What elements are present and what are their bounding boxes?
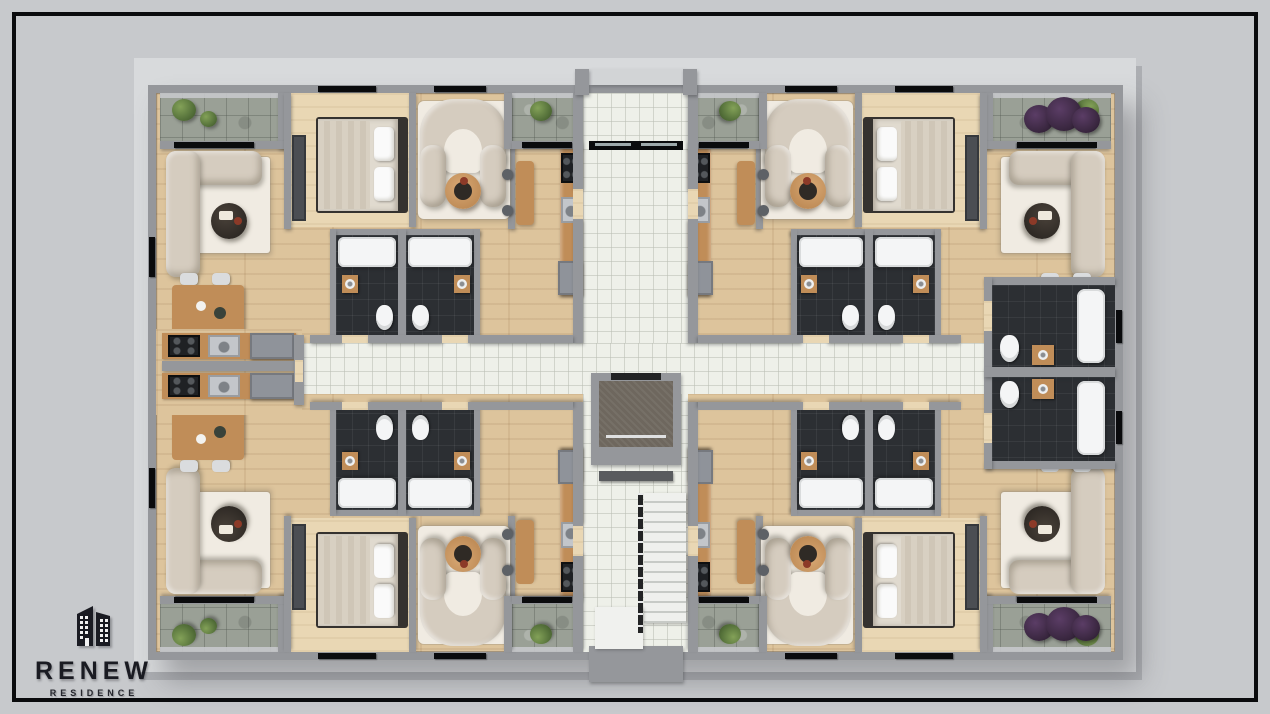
logo-title: RENEW (30, 657, 158, 686)
curved-sofa-inner (444, 572, 482, 616)
balcony-rail (689, 647, 759, 652)
purple-plant (1024, 605, 1102, 649)
wall (688, 556, 698, 652)
bathtub (1077, 289, 1105, 363)
toilet (1000, 335, 1019, 362)
bar-stool (502, 205, 513, 216)
balcony-plant (200, 111, 217, 127)
bar-stool (502, 169, 513, 180)
bathtub (408, 478, 472, 508)
bathtub (1077, 381, 1105, 455)
dining-chair (180, 460, 198, 472)
wall (759, 596, 767, 652)
twin-buildings-icon (69, 600, 119, 648)
window (1116, 411, 1122, 444)
wall (688, 93, 698, 189)
wall (504, 596, 512, 652)
wall (310, 335, 342, 343)
flower-decor (803, 560, 811, 568)
wall (984, 277, 1115, 285)
wall (688, 219, 698, 343)
curved-sofa-inner (789, 572, 827, 616)
balcony-plant (172, 99, 196, 121)
wash-basin (454, 452, 470, 470)
wall (984, 367, 1115, 377)
duvet (318, 536, 370, 624)
curved-sofa-inner (444, 129, 482, 173)
wash-basin (801, 452, 817, 470)
stair-landing (595, 607, 643, 649)
coffee-table-tray (1038, 211, 1052, 220)
door-gap (903, 402, 929, 410)
balcony-plant (200, 618, 217, 634)
wall (409, 93, 416, 227)
logo-subtitle: RESIDENCE (30, 688, 158, 698)
plate (196, 434, 206, 444)
curved-sofa-arm (825, 538, 851, 600)
wash-basin (913, 452, 929, 470)
dining-chair (180, 273, 198, 285)
pillow (374, 544, 394, 578)
toilet (412, 305, 429, 330)
wall (688, 402, 698, 526)
door-gap (342, 402, 368, 410)
wall (398, 229, 406, 335)
stairs (644, 493, 686, 623)
window (1116, 310, 1122, 343)
toilet (842, 305, 859, 330)
wall (855, 93, 862, 227)
rear-porch (589, 646, 683, 682)
entrance-porch (589, 69, 683, 85)
entrance-door (589, 141, 683, 150)
bar-table (737, 520, 755, 584)
wall (759, 93, 767, 149)
dining-table (172, 412, 244, 460)
apartment-quadrant (156, 93, 583, 343)
wardrobe (292, 524, 306, 610)
stove (168, 335, 200, 357)
bar-stool (502, 565, 513, 576)
wall (284, 93, 291, 229)
wall (573, 402, 583, 526)
duvet (901, 121, 953, 209)
window (318, 86, 376, 92)
window (318, 653, 376, 659)
bar-stool (502, 529, 513, 540)
wash-basin (913, 275, 929, 293)
wall (829, 335, 903, 343)
door-gap (803, 402, 829, 410)
toilet (878, 305, 895, 330)
toilet (878, 415, 895, 440)
wash-basin (1032, 379, 1054, 399)
pillow (877, 127, 897, 161)
duvet (318, 121, 370, 209)
wall (829, 402, 903, 410)
balcony-plant (719, 101, 741, 121)
door-gap (688, 526, 698, 556)
bar-table (737, 161, 755, 225)
wall (929, 402, 961, 410)
wall (468, 402, 573, 410)
wall (284, 516, 291, 652)
door-gap (442, 402, 468, 410)
wall (855, 518, 862, 652)
curved-sofa-arm (765, 145, 791, 207)
window (174, 142, 254, 148)
wall (865, 410, 873, 516)
bar-stool (758, 529, 769, 540)
pillow (877, 544, 897, 578)
toilet (376, 305, 393, 330)
fridge (250, 373, 294, 399)
wall (683, 69, 697, 95)
wall (504, 93, 512, 149)
wall (929, 335, 961, 343)
duvet (901, 536, 953, 624)
balcony-plant (530, 101, 552, 121)
wash-basin (454, 275, 470, 293)
door-gap (295, 360, 303, 382)
wall (573, 93, 583, 189)
wash-basin (801, 275, 817, 293)
coffee-table-tray (219, 211, 233, 220)
wall (935, 229, 941, 335)
stove (168, 375, 200, 397)
toilet (412, 415, 429, 440)
bathtub (875, 237, 933, 267)
wall (468, 335, 573, 343)
balcony-rail (160, 93, 278, 98)
wall (698, 335, 803, 343)
balcony-plant (719, 624, 741, 644)
wall (398, 410, 406, 516)
wall (980, 516, 987, 652)
window (895, 86, 953, 92)
window (434, 653, 486, 659)
wall (474, 229, 480, 335)
fridge (250, 333, 294, 359)
l-sofa (1071, 151, 1105, 277)
bathtub (875, 478, 933, 508)
window (699, 142, 749, 148)
bath-block (984, 277, 1115, 469)
balcony-plant (172, 624, 196, 646)
l-sofa (166, 151, 200, 277)
bar-table (516, 161, 534, 225)
flower-decor (460, 177, 468, 185)
elevator-door (611, 373, 661, 380)
pillow (877, 167, 897, 201)
elevator-shaft-wall (599, 471, 673, 481)
bar-table (516, 520, 534, 584)
wash-basin (342, 275, 358, 293)
window (149, 468, 155, 508)
window (149, 237, 155, 277)
dining-chair (212, 460, 230, 472)
wall (984, 461, 1115, 469)
flower-decor (803, 177, 811, 185)
plate (196, 301, 206, 311)
dining-table (172, 285, 244, 333)
door-gap (984, 413, 992, 443)
toilet (842, 415, 859, 440)
kitchen-sink (208, 375, 240, 397)
bar-stool (758, 565, 769, 576)
wall (573, 219, 583, 343)
floor-plan (148, 85, 1123, 660)
wardrobe (292, 135, 306, 221)
l-sofa (166, 468, 200, 594)
wardrobe (965, 135, 979, 221)
elevator-handrail (606, 435, 666, 438)
toilet (1000, 381, 1019, 408)
coffee-table-tray (1038, 525, 1052, 534)
flower-decor (460, 560, 468, 568)
bathtub (799, 478, 863, 508)
wall (368, 335, 442, 343)
door-gap (803, 335, 829, 343)
wall (409, 518, 416, 652)
window (1017, 597, 1097, 603)
curved-sofa-arm (420, 145, 446, 207)
logo: RENEW RESIDENCE (30, 600, 158, 698)
curved-sofa-arm (825, 145, 851, 207)
kitchen-sink (208, 335, 240, 357)
stair-rail (638, 493, 643, 633)
balcony-rail (512, 93, 582, 98)
curved-sofa-inner (789, 129, 827, 173)
wall (935, 410, 941, 516)
bathtub (799, 237, 863, 267)
pillow (374, 167, 394, 201)
kitchen-block (156, 329, 302, 415)
door-gap (442, 335, 468, 343)
apartment-quadrant (156, 402, 583, 652)
wardrobe (965, 524, 979, 610)
window (1017, 142, 1097, 148)
window (785, 653, 837, 659)
door-gap (573, 526, 583, 556)
door-gap (903, 335, 929, 343)
dining-chair (212, 273, 230, 285)
bathtub (338, 237, 396, 267)
window (522, 142, 572, 148)
bathtub (408, 237, 472, 267)
toilet (376, 415, 393, 440)
balcony-rail (689, 93, 759, 98)
wall (474, 410, 480, 516)
coffee-table-tray (219, 525, 233, 534)
flower-decor (234, 520, 242, 528)
window (699, 597, 749, 603)
window (522, 597, 572, 603)
window (434, 86, 486, 92)
bar-stool (758, 205, 769, 216)
wall (980, 93, 987, 229)
window (174, 597, 254, 603)
wash-basin (342, 452, 358, 470)
pillow (374, 127, 394, 161)
plant-pot (214, 307, 226, 319)
plant-pot (214, 426, 226, 438)
door-gap (688, 189, 698, 219)
balcony-plant (530, 624, 552, 644)
door-gap (342, 335, 368, 343)
wall (310, 402, 342, 410)
building (148, 85, 1123, 660)
bathtub (338, 478, 396, 508)
bar-stool (758, 169, 769, 180)
door-gap (984, 301, 992, 331)
wall (368, 402, 442, 410)
window (785, 86, 837, 92)
flower-decor (1029, 520, 1037, 528)
wall (162, 361, 296, 371)
pillow (374, 584, 394, 618)
pillow (877, 584, 897, 618)
wall (573, 556, 583, 652)
balcony-rail (512, 647, 582, 652)
wall (865, 229, 873, 335)
balcony-rail (160, 647, 278, 652)
wall (575, 69, 589, 95)
curved-sofa-arm (420, 538, 446, 600)
window (895, 653, 953, 659)
door-gap (573, 189, 583, 219)
wall (698, 402, 803, 410)
purple-plant (1024, 97, 1102, 141)
wash-basin (1032, 345, 1054, 365)
flower-decor (1029, 217, 1037, 225)
flower-decor (234, 217, 242, 225)
l-sofa (1071, 468, 1105, 594)
